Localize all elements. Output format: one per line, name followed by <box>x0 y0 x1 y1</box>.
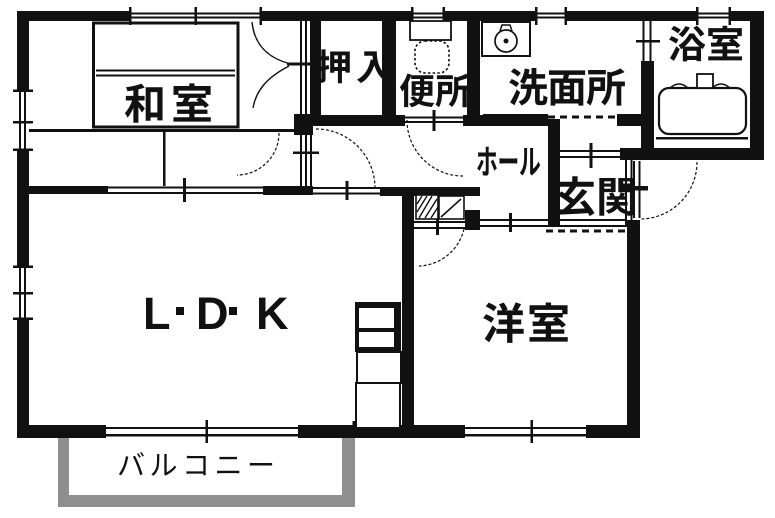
svg-text:K: K <box>256 288 289 339</box>
svg-text:D: D <box>196 288 229 339</box>
svg-text:L: L <box>143 288 171 339</box>
